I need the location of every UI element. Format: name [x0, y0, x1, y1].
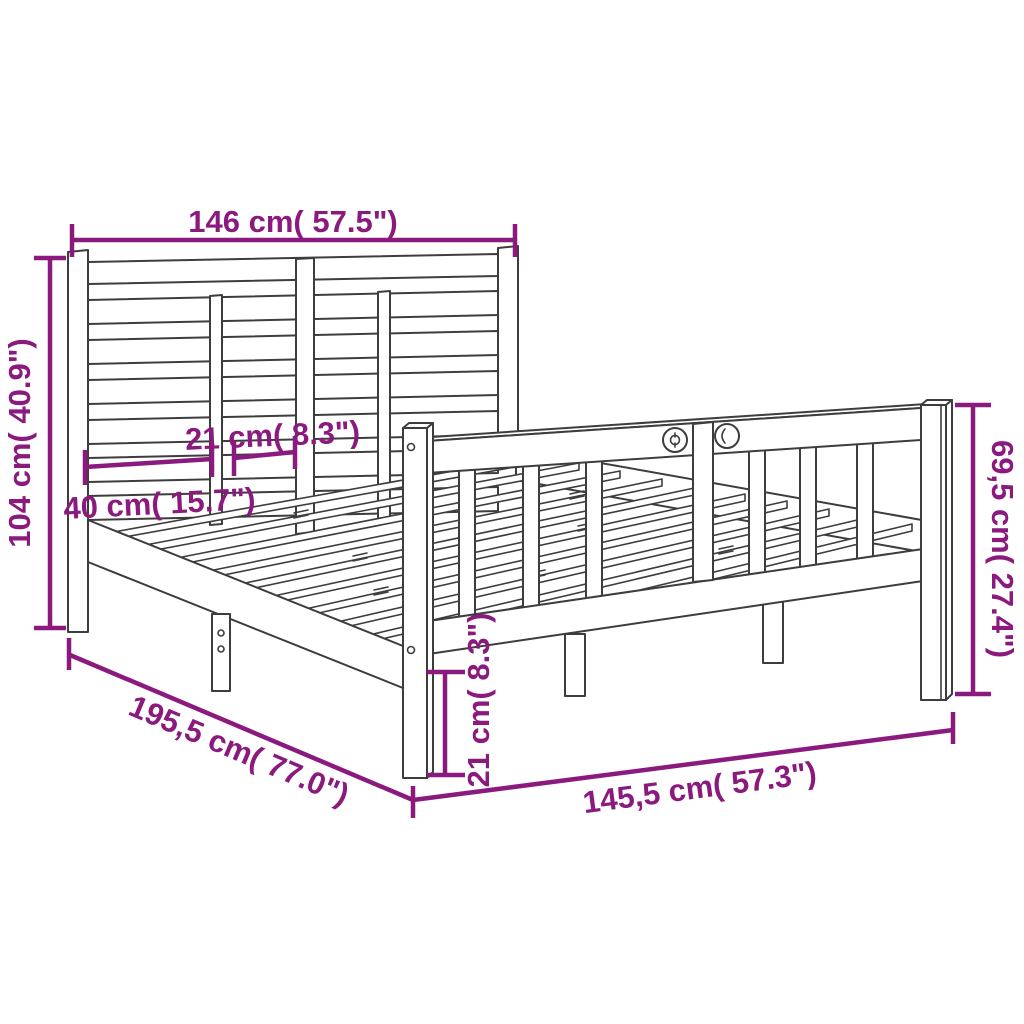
- bed-frame-line-drawing: 146 cm( 57.5") 104 cm( 40.9") 21 cm( 8.3…: [0, 0, 1024, 1024]
- diagram-canvas: 146 cm( 57.5") 104 cm( 40.9") 21 cm( 8.3…: [0, 0, 1024, 1024]
- footboard-baluster: [523, 464, 539, 608]
- headboard-center-stile: [296, 258, 314, 534]
- footboard-baluster: [800, 446, 816, 568]
- dimension-label: 104 cm( 40.9"): [2, 338, 37, 547]
- dimension-label: 21 cm( 8.3"): [461, 613, 496, 788]
- footboard-right-post: [921, 405, 946, 700]
- dim-headboard-width: 146 cm( 57.5"): [72, 204, 515, 257]
- dimension-label: 195,5 cm( 77.0"): [124, 688, 354, 812]
- dim-footboard-height: 69,5 cm( 27.4"): [955, 405, 1020, 694]
- screw-icon: [408, 647, 415, 654]
- headboard-top-rail: [88, 254, 498, 284]
- dimension-label: 146 cm( 57.5"): [188, 204, 397, 239]
- screw-icon: [218, 646, 224, 652]
- footboard-baluster: [749, 449, 765, 575]
- footboard-baluster: [459, 468, 475, 617]
- center-support-leg: [565, 634, 585, 696]
- headboard-board: [88, 331, 498, 364]
- footboard-baluster: [857, 442, 873, 559]
- headboard-board: [88, 371, 498, 404]
- center-support-leg: [763, 600, 783, 663]
- dimension-line: [34, 258, 66, 628]
- footboard-left-post: [403, 428, 427, 778]
- footboard-center-stile: [693, 422, 713, 582]
- dimension-label: 69,5 cm( 27.4"): [985, 440, 1020, 658]
- screw-icon: [408, 444, 415, 451]
- dim-headboard-height: 104 cm( 40.9"): [2, 258, 66, 628]
- footboard-baluster: [586, 460, 602, 599]
- headboard-board: [88, 291, 498, 324]
- screw-icon: [218, 630, 224, 636]
- headboard-left-post: [68, 250, 88, 632]
- cam-lock-icon: [715, 424, 739, 448]
